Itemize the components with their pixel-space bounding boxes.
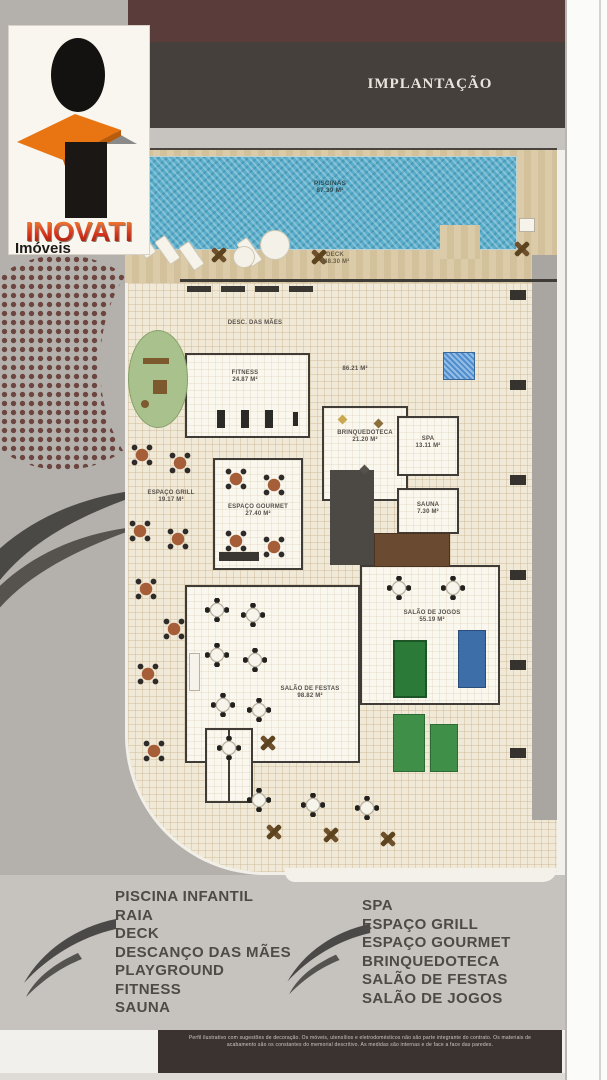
swoosh-icon — [282, 920, 372, 1010]
plant-icon — [322, 826, 340, 844]
lawn-mat-icon — [430, 724, 458, 772]
bench-icon — [510, 290, 526, 300]
room-label-sauna: SAUNA7.30 M² — [401, 502, 455, 516]
billiards-table-icon — [393, 640, 427, 698]
table-icon — [355, 796, 379, 820]
inovati-logo: INOVATI Imóveis — [8, 25, 150, 255]
table-icon — [225, 530, 247, 552]
disclaimer-line: acabamento são os constantes do memorial… — [170, 1042, 550, 1049]
legend-item: PISCINA INFANTIL — [115, 888, 291, 907]
table-icon — [241, 603, 265, 627]
room-label-brinquedoteca: BRINQUEDOTECA21.20 M² — [324, 430, 406, 444]
table-icon — [129, 520, 151, 542]
bar-counter-icon — [187, 286, 211, 292]
gym-equipment-icon — [217, 410, 225, 428]
disclaimer-line: Perfil ilustrativo com sugestões de deco… — [170, 1035, 550, 1042]
legend-item: ESPAÇO GOURMET — [362, 934, 511, 953]
page-right-edge — [565, 0, 607, 1080]
bar-counter-icon — [255, 286, 279, 292]
table-icon — [163, 618, 185, 640]
playground-equipment-icon — [143, 358, 169, 364]
table-icon — [131, 444, 153, 466]
room-label-gourmet: ESPAÇO GOURMET27.40 M² — [217, 504, 299, 518]
table-icon — [167, 528, 189, 550]
disclaimer-strip: Perfil ilustrativo com sugestões de deco… — [158, 1030, 562, 1073]
legend-item: SALÃO DE JOGOS — [362, 990, 511, 1009]
room-label-spa: SPA13.11 M² — [401, 436, 455, 450]
plant-icon — [259, 734, 277, 752]
logo-body-icon — [65, 142, 107, 218]
gym-equipment-icon — [293, 412, 298, 426]
swoosh-icon — [18, 917, 118, 1012]
bench-icon — [510, 660, 526, 670]
service-core — [330, 470, 374, 565]
bench-icon — [510, 475, 526, 485]
lawn-mat-icon — [393, 714, 425, 772]
bench-icon — [510, 380, 526, 390]
logo-head-icon — [51, 38, 105, 112]
plant-icon — [379, 830, 397, 848]
wood-deck-block — [374, 533, 450, 567]
table-icon — [263, 536, 285, 558]
flyer-page: IMPLANTAÇÃO INOVATI Imóveis PISCINAS87.3… — [0, 0, 607, 1080]
swimming-pool — [147, 156, 517, 250]
building-top-wall — [180, 279, 557, 282]
legend-item: DESCANÇO DAS MÃES — [115, 944, 291, 963]
legend-list-right: SPA ESPAÇO GRILL ESPAÇO GOURMET BRINQUED… — [362, 897, 511, 1008]
logo-subtitle: Imóveis — [15, 240, 71, 257]
legend-item: DECK — [115, 925, 291, 944]
gym-equipment-icon — [265, 410, 273, 428]
game-cabinet-icon — [458, 630, 486, 688]
legend-item: FITNESS — [115, 981, 291, 1000]
legend-band: PISCINA INFANTIL RAIA DECK DESCANÇO DAS … — [0, 875, 565, 1030]
table-icon — [143, 740, 165, 762]
kids-pool — [443, 352, 475, 380]
page-edge-line — [599, 0, 601, 1080]
table-icon — [205, 643, 229, 667]
bar-counter-icon — [221, 286, 245, 292]
plant-icon — [265, 823, 283, 841]
site-plan: PISCINAS87.39 M² DECK138.30 M² DESC. DAS… — [125, 148, 557, 875]
disclaimer-text: Perfil ilustrativo com sugestões de deco… — [170, 1035, 550, 1049]
kitchen-counter-icon — [219, 552, 259, 561]
table-icon — [263, 474, 285, 496]
legend-item: BRINQUEDOTECA — [362, 953, 511, 972]
header-underline-strip — [128, 128, 565, 150]
pool-deck-notch — [440, 225, 480, 259]
room-label-grill: ESPAÇO GRILL19.17 M² — [131, 490, 211, 504]
table-icon — [247, 788, 271, 812]
room-label-hall: 86.21 M² — [315, 366, 395, 373]
table-icon — [225, 468, 247, 490]
room-label-piscinas: PISCINAS87.39 M² — [265, 180, 395, 194]
legend-item: SAUNA — [115, 999, 291, 1018]
buffet-icon — [189, 653, 200, 691]
header-band: IMPLANTAÇÃO — [128, 42, 565, 130]
legend-item: SPA — [362, 897, 511, 916]
table-icon — [441, 576, 465, 600]
table-icon — [137, 663, 159, 685]
umbrella-table-icon — [233, 246, 255, 268]
room-label-fitness: FITNESS24.87 M² — [200, 370, 290, 384]
table-icon — [387, 576, 411, 600]
table-icon — [217, 736, 241, 760]
bench-icon — [510, 748, 526, 758]
gym-equipment-icon — [241, 410, 249, 428]
plant-icon — [513, 240, 531, 258]
legend-item: SALÃO DE FESTAS — [362, 971, 511, 990]
room-label-deck: DECK138.30 M² — [275, 252, 395, 266]
playground-equipment-icon — [141, 400, 149, 408]
table-icon — [247, 698, 271, 722]
table-icon — [205, 598, 229, 622]
legend-item: PLAYGROUND — [115, 962, 291, 981]
sidebar-swoosh-art — [0, 440, 128, 620]
page-bottom-margin — [0, 1073, 565, 1080]
right-boundary-wall — [532, 255, 557, 820]
table-icon — [169, 452, 191, 474]
legend-item: ESPAÇO GRILL — [362, 916, 511, 935]
table-icon — [211, 693, 235, 717]
playground-equipment-icon — [153, 380, 167, 394]
bench-icon — [510, 570, 526, 580]
playground-area — [128, 330, 188, 428]
room-label-desc-maes: DESC. DAS MÃES — [195, 320, 315, 327]
plant-icon — [210, 246, 228, 264]
legend-item: RAIA — [115, 907, 291, 926]
room-label-jogos: SALÃO DE JOGOS55.19 M² — [387, 610, 477, 624]
table-icon — [135, 578, 157, 600]
room-label-festas: SALÃO DE FESTAS98.82 M² — [265, 686, 355, 700]
deck-box-icon — [519, 218, 535, 232]
legend-list-left: PISCINA INFANTIL RAIA DECK DESCANÇO DAS … — [115, 888, 291, 1018]
bar-counter-icon — [289, 286, 313, 292]
table-icon — [301, 793, 325, 817]
page-title: IMPLANTAÇÃO — [360, 76, 500, 93]
table-icon — [243, 648, 267, 672]
plan-bottom-edge — [285, 868, 557, 882]
